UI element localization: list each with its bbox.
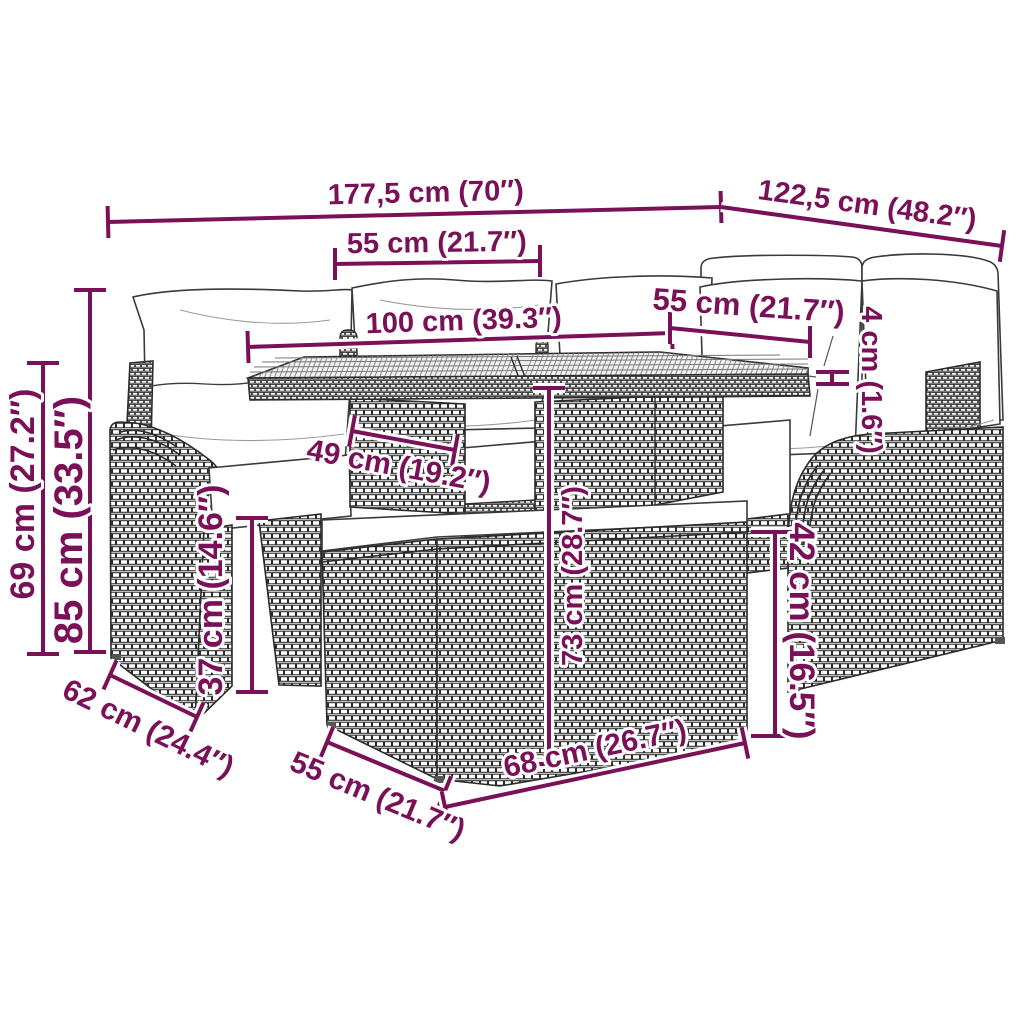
svg-text:69 cm (27.2″): 69 cm (27.2″): [4, 389, 42, 600]
svg-text:100 cm (39.3″): 100 cm (39.3″): [365, 302, 562, 340]
svg-text:42 cm (16.5″): 42 cm (16.5″): [782, 522, 821, 739]
svg-text:4 cm (1.6″): 4 cm (1.6″): [855, 306, 887, 454]
svg-text:55 cm (21.7″): 55 cm (21.7″): [347, 226, 527, 261]
svg-text:37 cm (14.6″): 37 cm (14.6″): [192, 485, 230, 696]
svg-text:85 cm (33.5″): 85 cm (33.5″): [47, 396, 91, 644]
svg-text:177,5 cm (70″): 177,5 cm (70″): [327, 175, 524, 212]
svg-text:73 cm (28.7″): 73 cm (28.7″): [557, 486, 589, 666]
